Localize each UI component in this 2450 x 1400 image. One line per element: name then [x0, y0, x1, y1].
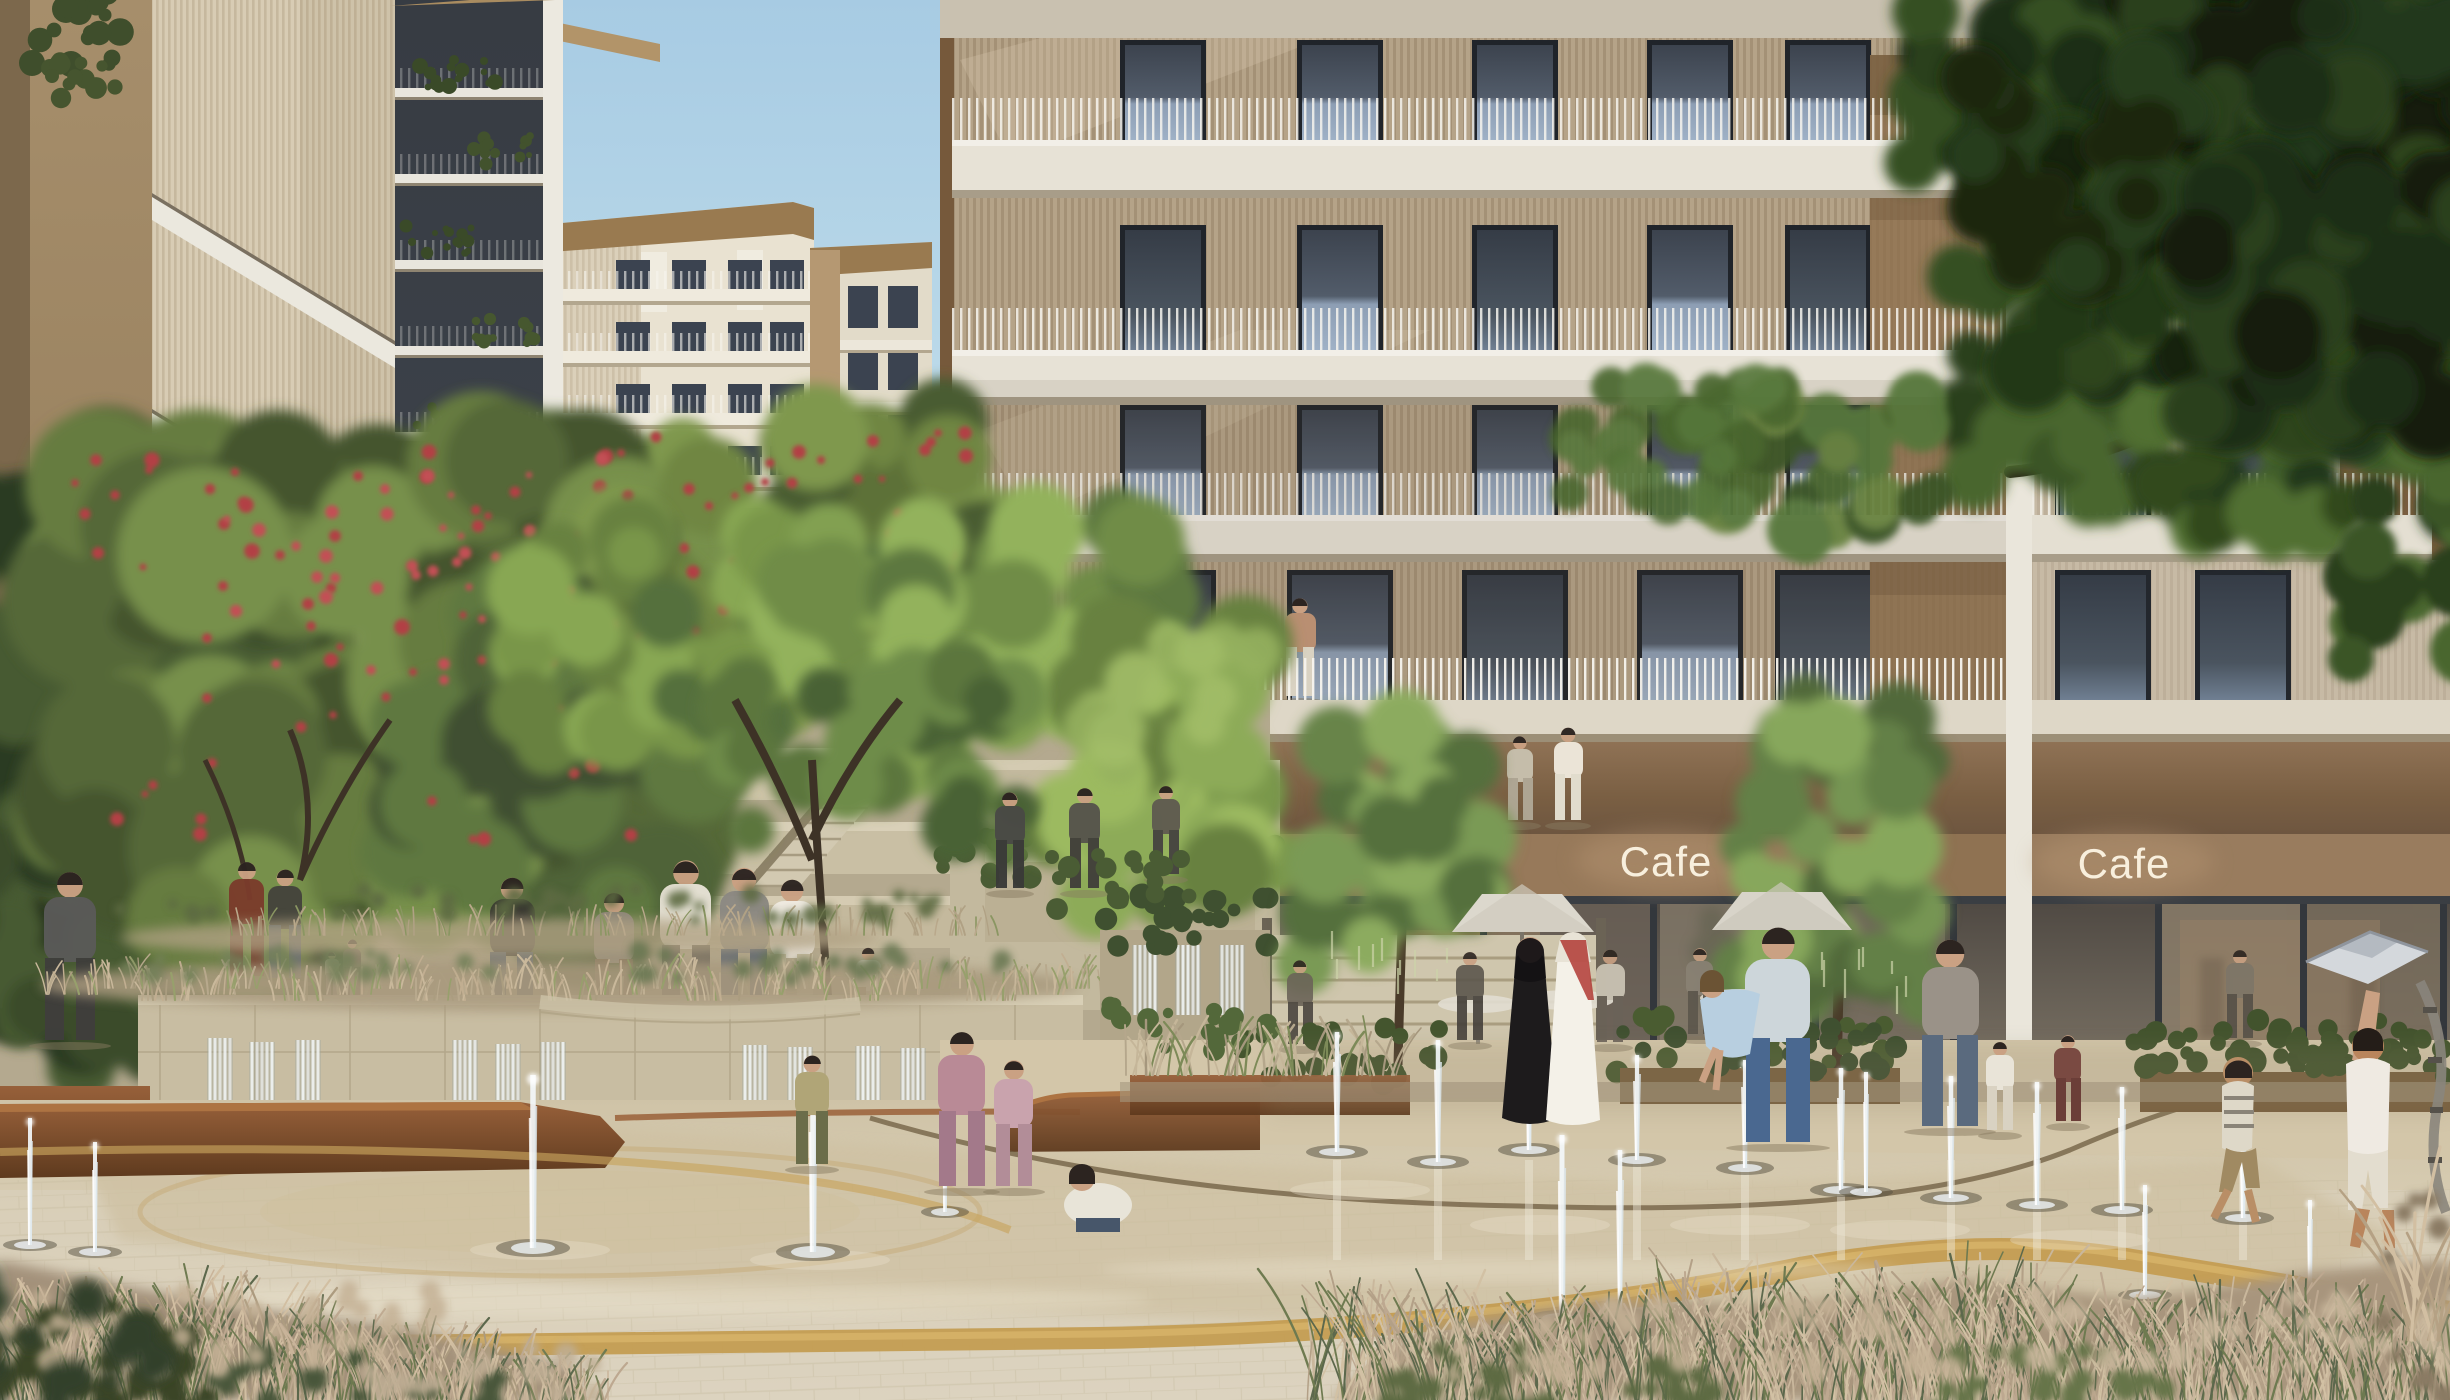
- svg-text:Cafe: Cafe: [2078, 840, 2171, 887]
- svg-text:Cafe: Cafe: [1620, 838, 1713, 885]
